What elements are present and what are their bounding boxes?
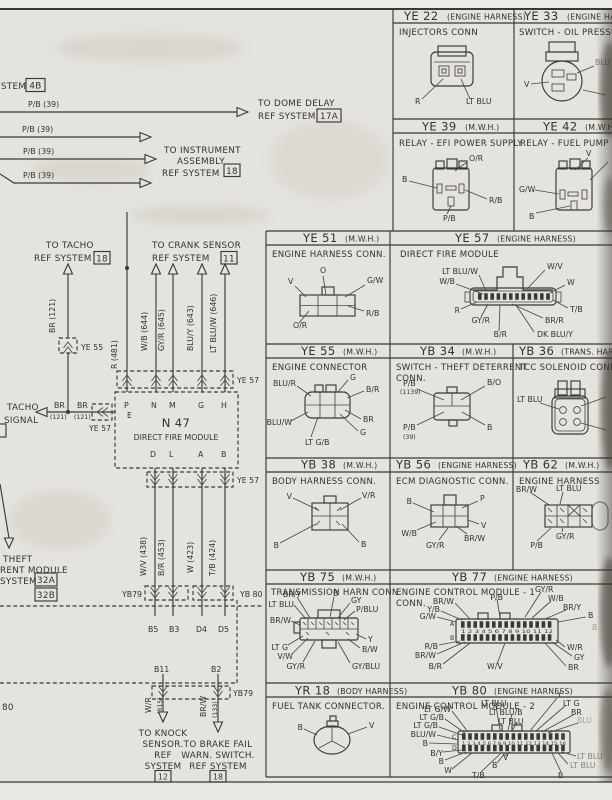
box-qualifier: (M.W.H.) [343, 348, 377, 357]
pin-label: GY/R [535, 585, 554, 594]
pin-label-num: (39) [403, 434, 416, 441]
pin-label: BR [568, 663, 579, 672]
module-subtitle: DIRECT FIRE MODULE [134, 433, 219, 442]
connector-ref-label: YE 57 [88, 424, 111, 433]
pin-label: DK BLU/Y [537, 330, 573, 339]
cut-label: 80 [2, 703, 14, 713]
module-pin: B [221, 450, 226, 459]
pin-label: LT BLU [570, 761, 596, 770]
pin-label: LT BLU [268, 600, 294, 609]
pin-label: BLU/W [411, 730, 437, 739]
module-title: N 47 [162, 416, 191, 430]
wire-label-vertical: BLU/Y (643) [186, 305, 195, 351]
wire-label-vertical: W (423) [186, 542, 195, 573]
pin-label: W/V [487, 662, 503, 671]
pin-label: V [481, 521, 487, 530]
ref-text: REF SYSTEM [258, 112, 316, 122]
scanned-wiring-diagram-page: STEM 4B P/B (39) P/B (39) P/B (39) P/B (… [0, 0, 612, 800]
system-fragment-label: STEM [1, 82, 26, 92]
pin-label: G [350, 373, 356, 382]
wire-label-vertical: (133) [212, 701, 219, 718]
pin-numbers: 1 2 3 4 5 6 7 8 9 10 11 12 [461, 629, 553, 635]
wire-label-vertical: BR/W [199, 696, 208, 717]
box-subtitle: INJECTORS CONN [399, 28, 478, 38]
pin-label: O/R [293, 321, 308, 330]
pin-label: G [360, 428, 366, 437]
pin-label: T/B [569, 305, 583, 314]
box-code: YE 42 [542, 120, 578, 134]
pin-label: GY [574, 653, 585, 662]
pin-label: LT BLU [481, 699, 507, 708]
pin-label: LT G [563, 699, 580, 708]
pin-label: T/B [471, 771, 485, 780]
pin-label: LT BLU/B [489, 708, 523, 717]
box-code: YE 22 [403, 9, 439, 23]
pin-label: BR/W [415, 651, 436, 660]
ref-box-18-label: 18 [226, 167, 238, 177]
box-qualifier: (M.W.H.) [462, 348, 496, 357]
pin-label: B [588, 611, 593, 620]
pin-label: P/B [530, 541, 543, 550]
pin-label: B [407, 497, 412, 506]
pin-label: R/B [425, 642, 438, 651]
pin-numbers: 1 2 3 4 5 6 7 8 9 10 11 12 13 14 15 16 [462, 741, 566, 747]
box-code: YB 77 [451, 570, 487, 584]
box-qualifier: (M.W.H.) [342, 574, 376, 583]
box-code: YE 55 [300, 344, 336, 358]
ecm-pin: B3 [169, 625, 179, 634]
box-subtitle: ECM DIAGNOSTIC CONN. [396, 477, 509, 487]
pin-label: LT BLU [556, 484, 582, 493]
ecm-pin: B11 [154, 665, 169, 674]
module-pin: P [124, 401, 129, 410]
pin-label: B [298, 723, 303, 732]
pin-label: BR [363, 415, 374, 424]
pin-label: W/B [548, 594, 564, 603]
pin-label: B/R [494, 330, 508, 339]
wire-label-vertical: R (481) [110, 340, 119, 369]
ref-box-18-label: 18 [96, 255, 108, 265]
pin-label: GY/R [556, 532, 575, 541]
ref-text: REF SYSTEM [162, 169, 220, 179]
pin-label: P/BLU [356, 605, 379, 614]
pin-label: V [369, 721, 375, 730]
wire-label: P/B (39) [28, 100, 59, 109]
ref-box-32b-label: 32B [37, 591, 55, 601]
box-subtitle: ENGINE HARNESS CONN. [272, 250, 386, 260]
pin-label: B/O [487, 378, 501, 387]
module-pin: D [150, 450, 156, 459]
ref-text: THEFT [2, 555, 33, 565]
ref-box-12-label: 12 [158, 773, 168, 782]
pin-label: BR/Y [563, 603, 581, 612]
module-pin: A [198, 450, 204, 459]
pin-label: GY/R [426, 541, 445, 550]
box-qualifier: (M.W.H.) [345, 235, 379, 244]
pin-label: G/W [420, 612, 437, 621]
box-code: YE 33 [523, 9, 559, 23]
ref-text: TO TACHO [45, 241, 94, 251]
module-pin: H [221, 401, 227, 410]
box-subtitle: FUEL TANK CONNECTOR. [272, 702, 385, 712]
row-label: B [450, 635, 454, 642]
wire-label-vertical: T/B (424) [208, 540, 217, 577]
pin-label: B [487, 423, 492, 432]
box-code: YB 36 [518, 344, 554, 358]
pin-label: W/B [401, 529, 417, 538]
pin-label: LT G [271, 643, 288, 652]
module-pin: N [151, 401, 157, 410]
ref-text: TO INSTRUMENT [163, 146, 241, 156]
pin-label: GY/R [287, 662, 306, 671]
box-code: YB 62 [522, 458, 558, 472]
ref-text: SENSOR. [143, 740, 184, 750]
pin-label: P/B [490, 593, 503, 602]
ref-text: REF SYSTEM [152, 254, 210, 264]
pin-label: O [320, 266, 326, 275]
box-code: YB 38 [300, 458, 336, 472]
ecm-pin: D4 [196, 625, 207, 634]
box-code: YB 80 [451, 684, 487, 698]
box-code: YB 75 [299, 570, 335, 584]
pin-label: B [402, 175, 407, 184]
pin-label: W [444, 766, 452, 775]
pin-label: BR/W [464, 534, 485, 543]
pin-label: LT G/B [413, 721, 438, 730]
pin-label: BR/R [545, 316, 564, 325]
box-code: YE 39 [421, 120, 457, 134]
box-subtitle: BODY HARNESS CONN. [272, 477, 376, 487]
box-qualifier: (M.W.H.) [343, 461, 377, 470]
pin-label: V [288, 277, 294, 286]
ref-text: TO KNOCK [138, 729, 188, 739]
pin-label: V [586, 149, 592, 158]
pin-label: R/B [366, 309, 379, 318]
ecm-pin: B5 [148, 625, 158, 634]
wire-label-num: (121) [50, 414, 67, 421]
connector-ref-label: YE 57 [236, 476, 259, 485]
pin-label: W [567, 278, 575, 287]
ref-text: TO CRANK SENSOR [151, 241, 241, 251]
pin-label: B/W [362, 645, 378, 654]
module-pin: M [169, 401, 176, 410]
pin-label: LT G/B [305, 438, 330, 447]
pin-label: V [503, 753, 509, 762]
box-subtitle: CONN. [396, 599, 426, 609]
ref-text: REF [154, 751, 172, 761]
wire-label: P/B (39) [22, 125, 53, 134]
pin-label: V [287, 492, 293, 501]
pin-label: G/W [367, 276, 384, 285]
tacho-signal-label: SIGNAL [4, 416, 38, 426]
pin-label-num: (1139) [400, 389, 421, 396]
box-qualifier: (ENGINE HARNESS) [494, 574, 573, 583]
box-qualifier: (ENGINE HARNESS) [447, 13, 526, 22]
connector-ref-label: YB79 [232, 689, 253, 698]
wire-label-vertical: W/B (644) [140, 312, 149, 351]
wire-label-vertical: W/V (438) [139, 537, 148, 576]
box-code: YE 51 [302, 231, 338, 245]
wire-label-vertical: GY/R (645) [157, 309, 166, 351]
pin-label: R [415, 97, 421, 106]
pin-label: B/R [366, 385, 380, 394]
ref-box-17a-label: 17A [320, 112, 338, 122]
ref-box-18-label: 18 [213, 773, 223, 782]
pin-label: B [529, 212, 534, 221]
connector-ref-label: YB79 [121, 590, 142, 599]
pin-label: P/B [403, 423, 416, 432]
pin-label: P [480, 494, 485, 503]
box-code: YR 18 [294, 684, 330, 698]
module-pin: L [169, 450, 174, 459]
page-gutter-shadow [596, 9, 612, 782]
box-subtitle: ENGINE CONTROL MODULE - 1 [396, 588, 535, 598]
box-qualifier: (BODY HARNESS) [337, 687, 407, 696]
ref-box-4b-label: 4B [29, 82, 41, 92]
ref-text: TO BRAKE FAIL [183, 740, 253, 750]
pin-label: B/R [429, 662, 443, 671]
row-label: C [452, 734, 456, 741]
pin-label: BR/Y [283, 590, 301, 599]
box-code: YE 57 [454, 231, 490, 245]
pin-label: GY/R [472, 316, 491, 325]
pin-label: V [524, 80, 530, 89]
pin-label: P/B [443, 214, 456, 223]
pin-label: B [439, 757, 444, 766]
pin-label: V/R [362, 491, 376, 500]
pin-label: W/V [547, 262, 563, 271]
pin-label: B [492, 761, 497, 770]
ref-text: REF SYSTEM [34, 254, 92, 264]
box-subtitle: RELAY - EFI POWER SUPPLY [399, 139, 523, 149]
ecm-pin: B2 [211, 665, 221, 674]
pin-label: R [455, 306, 461, 315]
pin-label: G/W [519, 185, 536, 194]
pin-label: R/B [489, 196, 502, 205]
pin-label: B [423, 739, 428, 748]
wire-label-vertical: LT BLU/W (646) [209, 294, 218, 353]
connector-ref-label: YE 55 [80, 343, 103, 352]
pin-label: LT BLU [498, 717, 524, 726]
pin-label: P/B [403, 379, 416, 388]
ref-text: SYSTEM [0, 577, 37, 587]
tacho-signal-label: TACHO [6, 403, 39, 413]
wire-label-num: (121) [74, 414, 91, 421]
ref-text: WARN. SWITCH. [181, 751, 255, 761]
wire-label-vertical: B/R (453) [157, 539, 166, 576]
box-code: YB 56 [395, 458, 431, 472]
box-qualifier: (M.W.H.) [565, 461, 599, 470]
pin-label: BLU [577, 716, 592, 725]
wire-label: BR [77, 401, 88, 410]
pin-label: BR/W [270, 616, 291, 625]
box-subtitle: ENGINE CONNECTOR [272, 363, 367, 373]
pin-label: BR/W [516, 485, 537, 494]
pin-label: O/R [469, 154, 484, 163]
pin-label: W/B [439, 277, 455, 286]
pin-label: BLU/W [267, 418, 293, 427]
pin-label: V/W [277, 652, 293, 661]
box-qualifier: (ENGINE HARNESS) [438, 461, 517, 470]
box-qualifier: (M.W.H.) [465, 123, 499, 132]
module-pin: G [198, 401, 204, 410]
connector-ref-label: YB 80 [239, 590, 263, 599]
wire-label: P/B (39) [23, 147, 54, 156]
box-qualifier: (ENGINE HARNESS) [497, 235, 576, 244]
wire-label-vertical: BR (121) [48, 299, 57, 333]
box-subtitle: SWITCH - THEFT DETERRENT [396, 363, 528, 373]
pin-label: LT BLU [466, 97, 492, 106]
row-label: D [452, 745, 457, 752]
pin-label: B [361, 540, 366, 549]
pin-label: Y [556, 690, 562, 699]
pin-label: B [333, 589, 338, 598]
module-pin: E [127, 411, 132, 420]
pin-label: BLU/R [273, 379, 297, 388]
wire-label: BR [54, 401, 65, 410]
box-subtitle: DIRECT FIRE MODULE [400, 250, 499, 260]
ref-text: ASSEMBLY [177, 157, 225, 167]
ecm-pin: D5 [218, 625, 229, 634]
pin-label: LT BLU [517, 395, 543, 404]
pin-label: W/R [567, 643, 583, 652]
wire-label: P/B (39) [23, 171, 54, 180]
box-code: YB 34 [419, 344, 455, 358]
pin-label: GY [351, 596, 362, 605]
connector-ref-label: YE 57 [236, 376, 259, 385]
pin-label: B [274, 541, 279, 550]
pin-label: B [558, 771, 563, 780]
pin-label: GY/BLU [352, 662, 380, 671]
box-subtitle: RELAY - FUEL PUMP [520, 139, 609, 149]
pin-label: Y [367, 635, 373, 644]
ref-text: TO DOME DELAY [257, 99, 335, 109]
ref-text: RENT MODULE [0, 566, 68, 576]
wire-label-vertical: W/R [144, 697, 153, 713]
pin-label: LT BLU/W [442, 267, 478, 276]
ref-box-32a-label: 32A [37, 576, 55, 586]
